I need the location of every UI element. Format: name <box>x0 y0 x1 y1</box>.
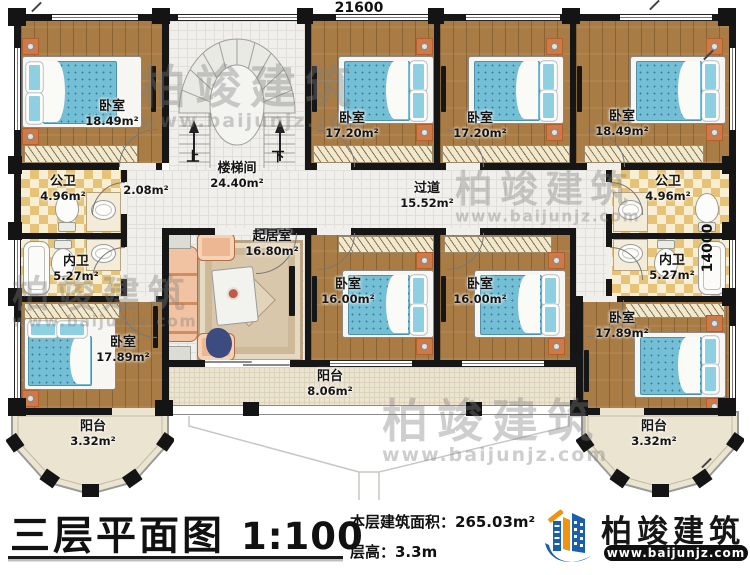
dimension-tick <box>31 2 42 13</box>
window <box>52 14 138 21</box>
nightstand <box>416 252 433 269</box>
roof-outline <box>169 412 589 500</box>
room-label-private-bath-right: 内卫 5.27m² <box>649 254 694 281</box>
room-label-hallway: 过道 15.52m² <box>400 182 453 209</box>
room-label-bedroom-t2: 卧室 17.20m² <box>325 112 378 139</box>
coffee-table <box>211 266 259 326</box>
pillow <box>544 277 557 304</box>
table-decor <box>228 289 238 299</box>
room-name: 卧室 <box>325 112 378 127</box>
wall <box>162 21 169 163</box>
room-name: 卧室 <box>453 278 506 293</box>
room-label-hall-niche: 2.08m² <box>123 184 168 197</box>
wall <box>434 21 440 163</box>
bed-sheet <box>678 337 700 393</box>
tv <box>577 66 582 112</box>
nightstand <box>706 315 723 332</box>
company-logo-icon <box>543 505 598 567</box>
company-url: www.baijunjz.com <box>604 545 748 561</box>
tv <box>289 266 295 316</box>
tv <box>312 66 317 112</box>
window <box>466 14 560 21</box>
window <box>14 322 21 400</box>
nightstand <box>706 124 723 141</box>
dimension-height: 14000 <box>700 216 716 280</box>
pillow <box>28 95 41 122</box>
room-area: 2.08m² <box>123 184 168 197</box>
room-area: 16.00m² <box>453 293 506 306</box>
wall <box>612 233 736 239</box>
pillow <box>412 63 425 90</box>
room-area: 3.32m² <box>631 435 676 448</box>
window <box>14 238 21 290</box>
room-area: 5.27m² <box>649 269 694 282</box>
pillow <box>544 306 557 333</box>
plan-title: 三层平面图1:100 <box>10 503 364 561</box>
room-name: 卧室 <box>321 278 374 293</box>
room-label-bedroom-br: 卧室 17.89m² <box>595 312 648 339</box>
bed-sheet <box>70 336 90 384</box>
room-area: 17.20m² <box>325 127 378 140</box>
window <box>330 360 412 367</box>
title-underline <box>8 556 343 559</box>
pillow <box>412 277 425 304</box>
nightstand <box>416 38 433 55</box>
window <box>620 14 712 21</box>
room-area: 17.89m² <box>595 327 648 340</box>
stair-up-label: 上 <box>186 146 199 165</box>
room-name: 过道 <box>400 182 453 197</box>
bed-sheet <box>43 61 65 122</box>
room-label-public-bath-right: 公卫 4.96m² <box>645 175 690 202</box>
title-block: 三层平面图1:100 本层建筑面积：265.03m² 层高：3.3m 柏竣建筑 … <box>0 500 750 575</box>
room-area: 17.89m² <box>96 351 149 364</box>
tv <box>584 350 589 392</box>
room-name: 内卫 <box>649 254 694 269</box>
sliding-door <box>205 360 290 367</box>
room-label-bedroom-tl: 卧室 18.49m² <box>85 100 138 127</box>
dimension-width: 21600 <box>327 0 391 16</box>
room-area: 5.27m² <box>53 270 98 283</box>
bed <box>634 332 726 398</box>
toilet-tank <box>58 222 76 232</box>
nightstand <box>22 128 39 145</box>
room-area: 3.32m² <box>70 435 115 448</box>
bed-sheet <box>386 275 408 333</box>
tv <box>441 66 446 112</box>
tv <box>441 276 446 322</box>
nightstand <box>416 124 433 141</box>
wall <box>305 235 311 360</box>
room-label-bedroom-tr: 卧室 18.49m² <box>595 110 648 137</box>
plan-title-text: 三层平面图 <box>10 513 225 559</box>
room-name: 内卫 <box>53 255 98 270</box>
rect-shape <box>652 484 669 497</box>
room-area: 15.52m² <box>400 197 453 210</box>
room-name: 卧室 <box>595 110 648 125</box>
pillow <box>542 63 555 90</box>
window <box>729 238 736 290</box>
nightstand <box>546 124 563 141</box>
bed-sheet <box>386 61 408 119</box>
bed-sheet <box>678 61 700 119</box>
plan-stats: 本层建筑面积：265.03m² 层高：3.3m <box>350 511 535 571</box>
room-name: 阳台 <box>631 420 676 435</box>
corridor-floor-left <box>127 228 162 296</box>
wall <box>570 21 576 163</box>
room-area: 16.80m² <box>245 245 298 258</box>
pillow <box>704 92 717 119</box>
room-area: 18.49m² <box>595 125 648 138</box>
pillow <box>412 306 425 333</box>
stair-down-label: 下 <box>271 146 284 165</box>
nightstand <box>22 390 39 407</box>
toilet-tank <box>54 240 72 249</box>
plan-scale: 1:100 <box>241 515 364 558</box>
room-area: 17.20m² <box>453 127 506 140</box>
stair-center-void <box>210 65 264 145</box>
plant <box>206 328 232 358</box>
room-area: 4.96m² <box>645 190 690 203</box>
floor-plan-page: 卧室 18.49m² 楼梯间 24.40m² 上 下 卧室 17.20m² 卧室… <box>0 0 750 575</box>
nightstand <box>22 38 39 55</box>
window <box>729 326 736 404</box>
rect-shape <box>82 484 99 497</box>
pillow <box>542 92 555 119</box>
sofa <box>166 246 198 342</box>
room-floor-balcony-center <box>169 367 576 407</box>
window <box>14 48 21 130</box>
nightstand <box>546 38 563 55</box>
nightstand <box>416 338 433 355</box>
room-label-private-bath-left: 内卫 5.27m² <box>53 255 98 282</box>
room-name: 卧室 <box>453 112 506 127</box>
corridor-floor-right <box>576 228 606 296</box>
room-label-living: 起居室 16.80m² <box>245 230 298 257</box>
room-area: 16.00m² <box>321 293 374 306</box>
room-label-public-bath-left: 公卫 4.96m² <box>40 175 85 202</box>
room-name: 起居室 <box>245 230 298 245</box>
room-label-stairwell: 楼梯间 24.40m² <box>210 162 263 189</box>
wall <box>162 228 169 415</box>
room-name: 阳台 <box>70 420 115 435</box>
balcony-railing <box>169 405 576 415</box>
pillow <box>28 64 41 91</box>
floor-plan: 卧室 18.49m² 楼梯间 24.40m² 上 下 卧室 17.20m² 卧室… <box>0 0 750 500</box>
room-label-balcony-left: 阳台 3.32m² <box>70 420 115 447</box>
room-name: 卧室 <box>96 336 149 351</box>
room-floor-hallway <box>127 170 606 228</box>
room-area: 8.06m² <box>307 385 352 398</box>
logo-tower-right <box>572 513 585 553</box>
pillow <box>59 323 85 336</box>
dimension-tick <box>649 0 660 10</box>
pillow <box>704 338 717 364</box>
floor-area-text: 本层建筑面积：265.03m² <box>350 511 535 532</box>
room-label-balcony-center: 阳台 8.06m² <box>307 370 352 397</box>
pillow <box>30 323 56 336</box>
room-area: 18.49m² <box>85 115 138 128</box>
balcony-door-opening <box>600 408 644 415</box>
room-name: 卧室 <box>85 100 138 115</box>
wall <box>434 235 440 360</box>
room-label-bedroom-m2: 卧室 16.00m² <box>453 278 506 305</box>
room-label-bedroom-t3: 卧室 17.20m² <box>453 112 506 139</box>
window <box>178 14 298 21</box>
wall <box>305 21 311 170</box>
floor-height-text: 层高：3.3m <box>350 541 535 562</box>
room-label-bedroom-m1: 卧室 16.00m² <box>321 278 374 305</box>
bathtub <box>23 241 50 295</box>
window <box>462 360 544 367</box>
nightstand <box>548 338 565 355</box>
pillow <box>704 366 717 392</box>
pillow <box>704 63 717 90</box>
bed-sheet <box>516 61 538 119</box>
room-name: 公卫 <box>645 175 690 190</box>
wall <box>21 233 121 239</box>
wall <box>576 296 583 415</box>
room-area: 24.40m² <box>210 177 263 190</box>
tv <box>312 276 317 322</box>
roof-lines <box>189 416 569 500</box>
wardrobe <box>24 303 120 319</box>
tv <box>151 66 156 112</box>
pillow <box>412 92 425 119</box>
room-name: 公卫 <box>40 175 85 190</box>
logo-tower-mid <box>563 517 570 551</box>
room-label-bedroom-bl: 卧室 17.89m² <box>96 336 149 363</box>
toilet-tank <box>657 240 675 249</box>
room-label-balcony-right: 阳台 3.32m² <box>631 420 676 447</box>
room-area: 4.96m² <box>40 190 85 203</box>
room-name: 阳台 <box>307 370 352 385</box>
nightstand <box>548 252 565 269</box>
balcony-door-opening <box>112 408 156 415</box>
bed-sheet <box>518 275 540 333</box>
wall <box>311 163 736 170</box>
window <box>729 48 736 130</box>
room-name: 楼梯间 <box>210 162 263 177</box>
armchair <box>197 233 235 261</box>
room-name: 卧室 <box>595 312 648 327</box>
